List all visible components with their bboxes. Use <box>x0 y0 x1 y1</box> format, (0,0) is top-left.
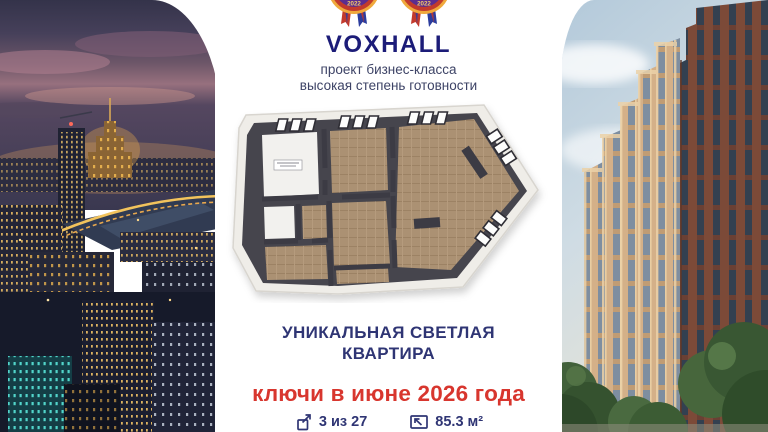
floor-plan-illustration <box>218 98 558 303</box>
specs-row: 3 из 27 85.3 м² <box>215 412 562 431</box>
plan-label <box>274 160 302 170</box>
night-city-illustration <box>0 0 222 432</box>
floor-value: 3 из 27 <box>319 414 367 430</box>
floor-arrow-icon <box>294 412 313 431</box>
subtitle-line-1: проект бизнес-класса <box>215 62 562 78</box>
headline-line-1: УНИКАЛЬНАЯ СВЕТЛАЯ <box>215 322 562 343</box>
floor-spec: 3 из 27 <box>294 412 367 431</box>
building-render-illustration <box>560 0 768 432</box>
keys-date: ключи в июне 2026 года <box>215 381 562 407</box>
area-spec: 85.3 м² <box>409 412 483 431</box>
building-render-photo <box>560 0 768 432</box>
award-badges: 2022 2022 <box>215 0 562 28</box>
apartment-floor-plan-3d <box>218 98 558 303</box>
headline-line-2: КВАРТИРА <box>215 343 562 364</box>
brand-logo-text: VOXHALL <box>215 31 562 59</box>
area-icon <box>409 412 429 431</box>
area-value: 85.3 м² <box>435 414 483 430</box>
project-subtitle: проект бизнес-класса высокая степень гот… <box>215 62 562 94</box>
flyer: 2022 2022 VOXHALL проект бизнес-класса в… <box>0 0 768 432</box>
medal-year: 2022 <box>417 1 431 8</box>
award-medal-icon: 2022 <box>331 0 377 28</box>
subtitle-line-2: высокая степень готовности <box>215 78 562 94</box>
center-panel: 2022 2022 VOXHALL проект бизнес-класса в… <box>215 0 562 432</box>
award-medal-icon: 2022 <box>401 0 447 28</box>
night-city-photo <box>0 0 222 432</box>
headline: УНИКАЛЬНАЯ СВЕТЛАЯ КВАРТИРА <box>215 322 562 364</box>
medal-year: 2022 <box>347 1 361 8</box>
